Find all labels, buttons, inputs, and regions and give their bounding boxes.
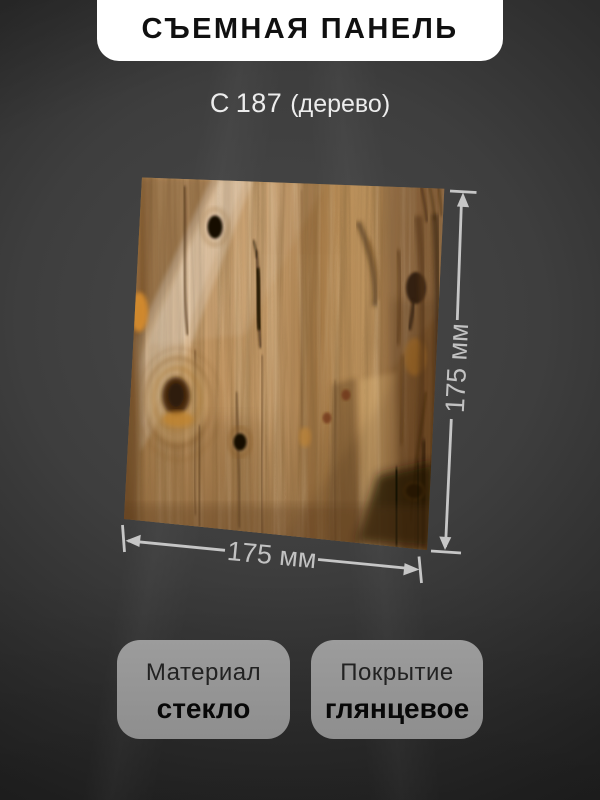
svg-text:175 мм: 175 мм xyxy=(226,536,318,574)
svg-text:175 мм: 175 мм xyxy=(440,323,474,414)
